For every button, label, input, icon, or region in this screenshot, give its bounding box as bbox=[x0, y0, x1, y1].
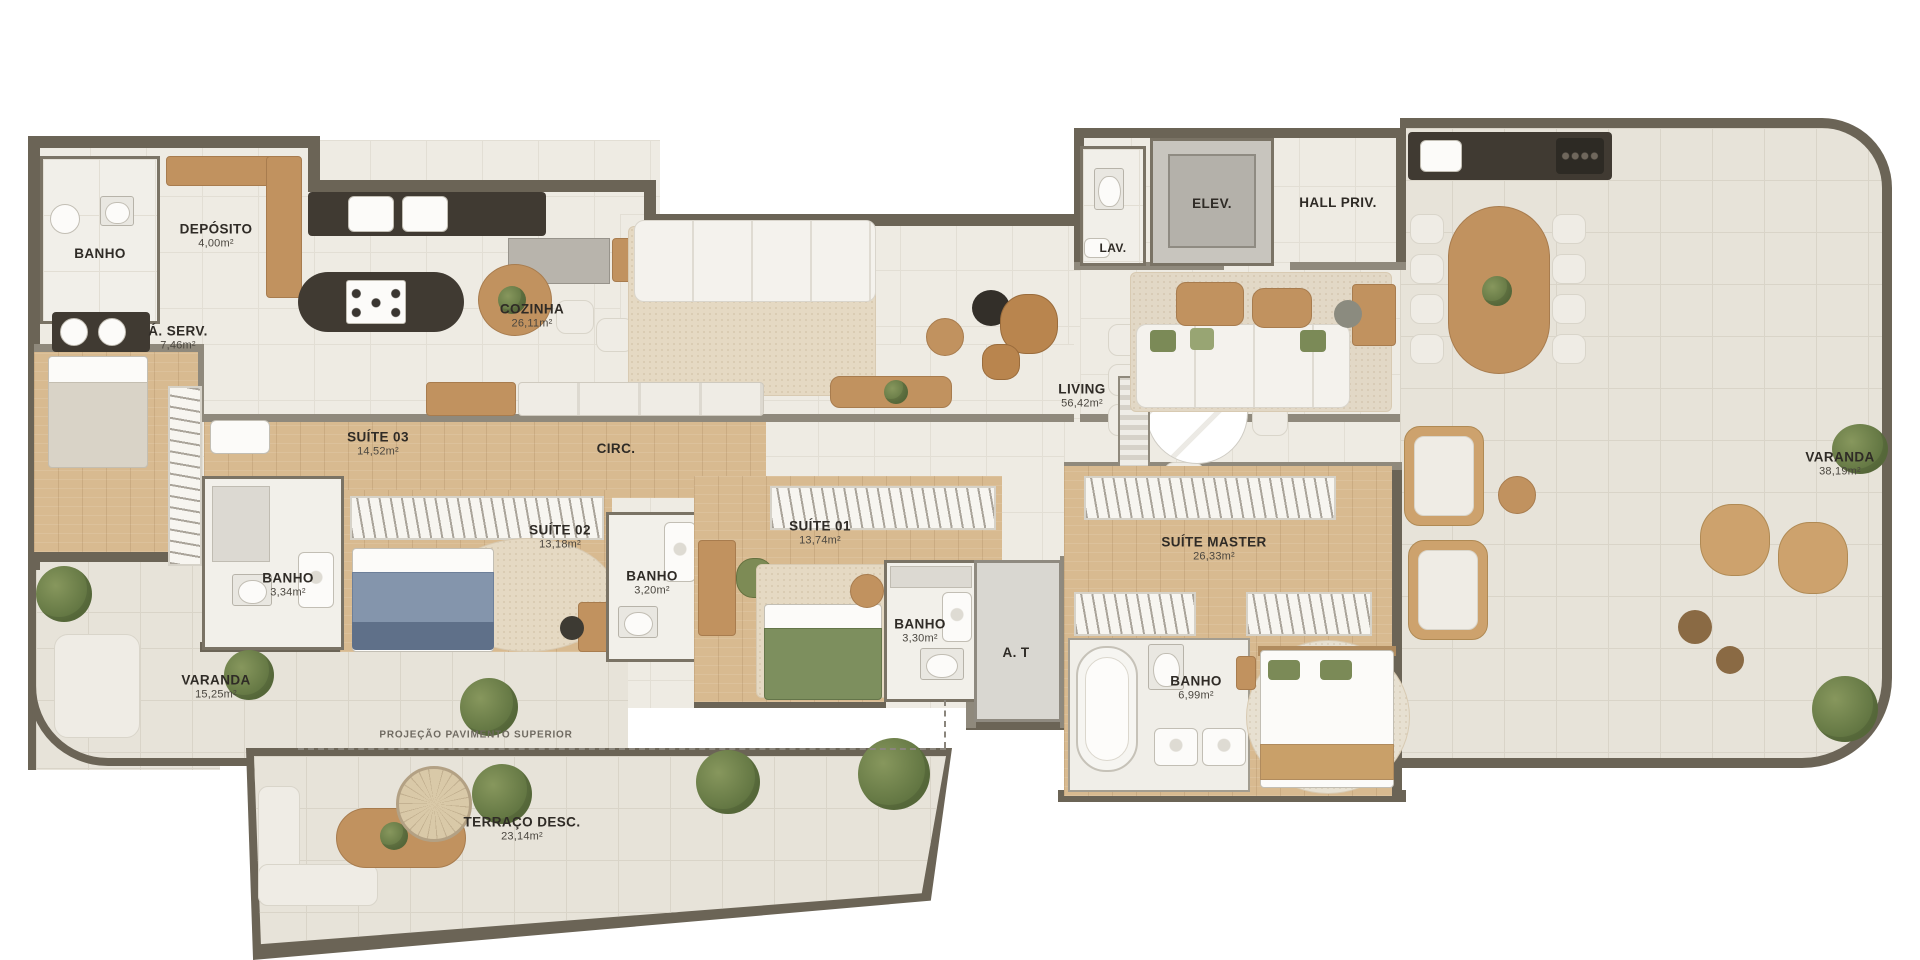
sideboard bbox=[426, 382, 516, 416]
dining-chair bbox=[1552, 254, 1586, 284]
room-label-area-tecnica: A. T bbox=[1002, 645, 1029, 661]
dining-chair bbox=[1410, 254, 1444, 284]
outdoor-sofa bbox=[258, 864, 378, 906]
bed-duvet-green bbox=[764, 628, 882, 700]
room-label-banho-master: BANHO6,99m² bbox=[1170, 673, 1222, 702]
dining-chair bbox=[1552, 214, 1586, 244]
side-table-dark bbox=[1678, 610, 1712, 644]
wardrobe bbox=[1246, 592, 1372, 636]
room-label-banho-suite-03: BANHO3,34m² bbox=[262, 570, 314, 599]
armchair bbox=[1700, 504, 1770, 576]
coffee-table bbox=[1252, 288, 1312, 328]
room-label-living: LIVING56,42m² bbox=[1058, 381, 1105, 410]
deposito-shelf bbox=[266, 156, 302, 298]
lounge-cushion bbox=[1414, 436, 1474, 516]
projection-line bbox=[944, 700, 946, 748]
pillow-icon bbox=[1268, 660, 1300, 680]
shower bbox=[890, 566, 972, 588]
coffee-table bbox=[1176, 282, 1244, 326]
room-label-banho-servico: BANHO bbox=[74, 246, 126, 262]
toilet-icon bbox=[1094, 168, 1124, 210]
room-label-suite-01: SUÍTE 0113,74m² bbox=[789, 518, 851, 547]
side-table-dark bbox=[1716, 646, 1744, 674]
nightstand bbox=[1236, 656, 1256, 690]
nightstand bbox=[850, 574, 884, 608]
room-label-area-servico: Á. SERV.7,46m² bbox=[148, 323, 207, 352]
room-label-cozinha: COZINHA26,11m² bbox=[500, 301, 564, 330]
sink-icon bbox=[1154, 728, 1198, 766]
wall bbox=[1396, 128, 1406, 270]
plant-icon bbox=[1482, 276, 1512, 306]
pillow-icon bbox=[1300, 330, 1326, 352]
room-label-circ: CIRC. bbox=[597, 441, 636, 457]
projection-line bbox=[298, 748, 946, 750]
desk-chair bbox=[560, 616, 584, 640]
room-label-suite-master: SUÍTE MASTER26,33m² bbox=[1161, 534, 1266, 563]
dryer-icon bbox=[98, 318, 126, 346]
dining-chair bbox=[1410, 214, 1444, 244]
plant-icon bbox=[460, 678, 518, 736]
side-table bbox=[926, 318, 964, 356]
room-label-banho-suite-01: BANHO3,30m² bbox=[894, 616, 946, 645]
wall bbox=[966, 722, 1070, 730]
wardrobe bbox=[1084, 476, 1336, 520]
room-banho-servico bbox=[40, 156, 160, 324]
room-label-elev: ELEV. bbox=[1192, 196, 1232, 212]
sofa bbox=[634, 220, 876, 302]
pillow-icon bbox=[1150, 330, 1176, 352]
bed-duvet bbox=[48, 382, 148, 468]
room-label-deposito: DEPÓSITO4,00m² bbox=[180, 221, 253, 250]
floor-plan: BANHO DEPÓSITO4,00m² Á. SERV.7,46m² COZI… bbox=[0, 0, 1920, 960]
room-label-lav: LAV. bbox=[1100, 241, 1127, 255]
bench-cushions bbox=[518, 382, 764, 416]
wall bbox=[28, 136, 320, 148]
desk-chair bbox=[1334, 300, 1362, 328]
side-table bbox=[1498, 476, 1536, 514]
projection-note: PROJEÇÃO PAVIMENTO SUPERIOR bbox=[379, 730, 572, 741]
plant-icon bbox=[36, 566, 92, 622]
pillow-icon bbox=[1190, 328, 1214, 350]
plant-icon bbox=[696, 750, 760, 814]
toilet-icon bbox=[100, 196, 134, 226]
washer-icon bbox=[60, 318, 88, 346]
wardrobe bbox=[1074, 592, 1196, 636]
room-area-tecnica bbox=[974, 560, 1062, 722]
dining-chair bbox=[1410, 334, 1444, 364]
wall bbox=[1290, 262, 1406, 270]
kitchen-sink-icon bbox=[402, 196, 448, 232]
lounge-cushion bbox=[1418, 550, 1478, 630]
grill-icon bbox=[1556, 138, 1604, 174]
wall bbox=[1074, 128, 1406, 138]
room-label-varanda-esquerda: VARANDA15,25m² bbox=[181, 672, 250, 701]
room-label-suite-02: SUÍTE 0213,18m² bbox=[529, 522, 591, 551]
room-label-banho-suite-02: BANHO3,20m² bbox=[626, 568, 678, 597]
sink-icon bbox=[1202, 728, 1246, 766]
room-label-terraco: TERRAÇO DESC.23,14m² bbox=[464, 814, 581, 843]
sink-icon bbox=[1420, 140, 1462, 172]
desk bbox=[698, 540, 736, 636]
dresser bbox=[210, 420, 270, 454]
lounge-chair bbox=[54, 634, 140, 738]
shower bbox=[212, 486, 270, 562]
toilet-icon bbox=[920, 648, 964, 680]
room-label-hall-priv: HALL PRIV. bbox=[1299, 195, 1377, 211]
room-label-varanda-direita: VARANDA38,19m² bbox=[1805, 449, 1874, 478]
wardrobe bbox=[168, 386, 202, 566]
bed-throw bbox=[352, 622, 494, 650]
stove-icon bbox=[346, 280, 406, 324]
armchair bbox=[1778, 522, 1848, 594]
dining-chair bbox=[1552, 294, 1586, 324]
sink-icon bbox=[50, 204, 80, 234]
sink-icon bbox=[942, 592, 972, 642]
plant-icon bbox=[1812, 676, 1878, 742]
wall bbox=[308, 180, 656, 192]
bathtub-icon bbox=[1076, 646, 1138, 772]
dining-chair bbox=[1552, 334, 1586, 364]
toilet-icon bbox=[618, 606, 658, 638]
dining-chair bbox=[1410, 294, 1444, 324]
ottoman bbox=[982, 344, 1020, 380]
room-label-suite-03: SUÍTE 0314,52m² bbox=[347, 429, 409, 458]
pillow-icon bbox=[1320, 660, 1352, 680]
bed-throw-tan bbox=[1260, 744, 1394, 780]
round-daybed bbox=[396, 766, 472, 842]
plant-icon bbox=[884, 380, 908, 404]
kitchen-sink-icon bbox=[348, 196, 394, 232]
